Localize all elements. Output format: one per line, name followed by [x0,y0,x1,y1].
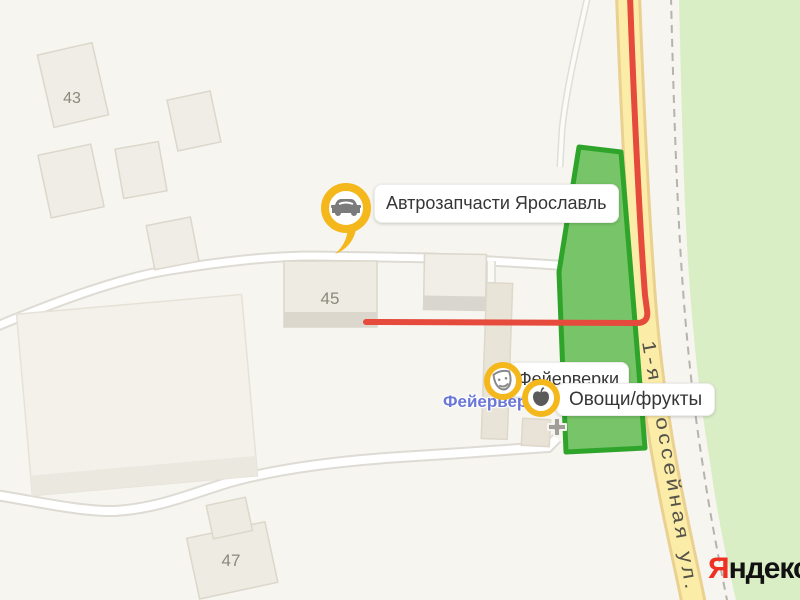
yandex-logo[interactable]: Яндекс [708,551,800,587]
produce-marker[interactable] [519,376,563,420]
building-produce-kiosk [521,418,550,446]
autoparts-label-text: Автрозапчасти Ярославль [386,193,607,214]
building-43-number: 43 [63,90,81,107]
building-45-number: 45 [321,289,340,308]
car-icon [318,182,374,258]
yandex-logo-first-letter: Я [708,552,729,585]
building-45: 45 [284,261,377,327]
produce-label-bubble[interactable]: Овощи/фрукты [556,383,715,416]
yandex-logo-rest: ндекс [729,552,800,585]
building-47-number: 47 [222,551,241,570]
warehouse-building [16,294,257,495]
autoparts-marker[interactable] [318,182,374,258]
autoparts-label-bubble[interactable]: Автрозапчасти Ярославль [374,184,619,223]
apple-icon [519,376,563,420]
base-map: 1-я Шоссейная ул. 43 45 [0,0,800,600]
building-right-of-45 [424,253,487,310]
map-viewport[interactable]: 1-я Шоссейная ул. 43 45 [0,0,800,600]
building-mid [115,142,167,199]
produce-label-text: Овощи/фрукты [569,389,702,411]
building-small-2 [146,217,199,270]
